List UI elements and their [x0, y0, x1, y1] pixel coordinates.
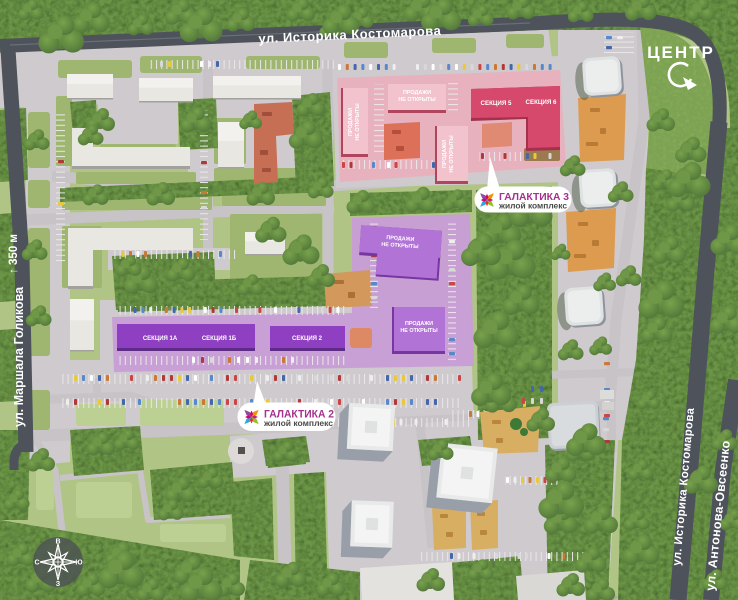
- svg-text:ПРОДАЖИ: ПРОДАЖИ: [403, 90, 431, 96]
- svg-text:Ю: Ю: [75, 560, 82, 567]
- svg-text:жилой комплекс: жилой комплекс: [498, 201, 567, 210]
- svg-text:ул. Маршала Голикова: ул. Маршала Голикова: [12, 286, 26, 427]
- svg-text:НЕ ОТКРЫТЫ: НЕ ОТКРЫТЫ: [400, 328, 437, 334]
- svg-text:З: З: [56, 581, 61, 588]
- svg-text:жилой комплекс: жилой комплекс: [263, 418, 333, 428]
- svg-text:СЕКЦИЯ 1А: СЕКЦИЯ 1А: [143, 336, 178, 342]
- svg-text:НЕ ОТКРЫТЫ: НЕ ОТКРЫТЫ: [398, 97, 435, 103]
- svg-text:ПРОДАЖИ: ПРОДАЖИ: [405, 321, 433, 327]
- svg-text:НЕ ОТКРЫТЫ: НЕ ОТКРЫТЫ: [355, 103, 361, 140]
- svg-text:С: С: [34, 560, 39, 567]
- svg-text:СЕКЦИЯ 6: СЕКЦИЯ 6: [526, 99, 558, 106]
- svg-text:ПРОДАЖИ: ПРОДАЖИ: [442, 140, 448, 168]
- svg-text:В: В: [55, 539, 60, 546]
- svg-text:СЕКЦИЯ 1Б: СЕКЦИЯ 1Б: [202, 336, 237, 342]
- svg-text:ЦЕНТР: ЦЕНТР: [647, 43, 715, 62]
- svg-text:НЕ ОТКРЫТЫ: НЕ ОТКРЫТЫ: [449, 135, 455, 172]
- svg-text:↑ 350 м: ↑ 350 м: [8, 234, 20, 274]
- svg-text:СЕКЦИЯ 2: СЕКЦИЯ 2: [292, 336, 323, 342]
- svg-text:ПРОДАЖИ: ПРОДАЖИ: [348, 108, 354, 136]
- svg-text:СЕКЦИЯ 5: СЕКЦИЯ 5: [481, 100, 513, 107]
